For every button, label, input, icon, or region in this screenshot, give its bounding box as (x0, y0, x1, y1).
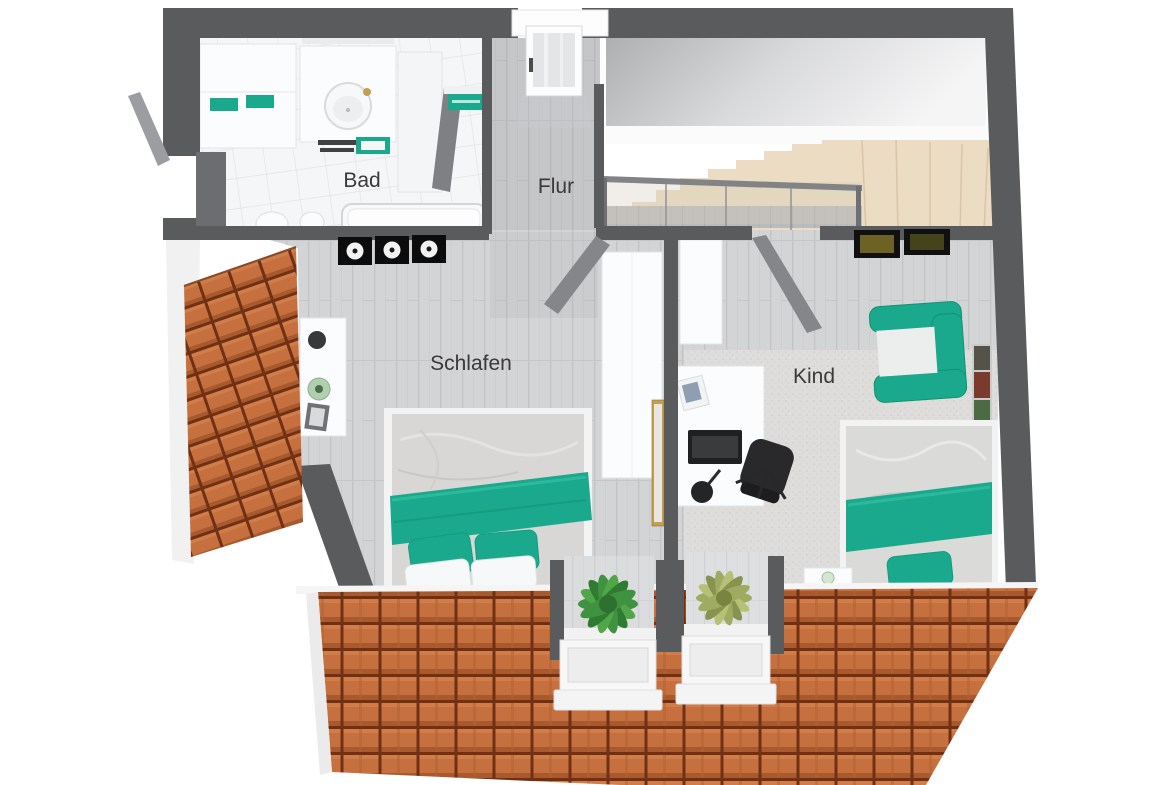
bath-mat-inner (361, 141, 385, 150)
picture-frame-inner (309, 407, 325, 427)
planter-inset (690, 644, 762, 676)
exterior-wall-top-left (163, 8, 520, 38)
stairwell (602, 38, 1006, 236)
room-label-kind: Kind (793, 365, 835, 388)
single-bed (840, 420, 998, 592)
armchair (869, 301, 967, 403)
floorplan-rendering: Bad Flur Schlafen Kind (0, 0, 1170, 785)
pane-reflection (560, 33, 563, 87)
handrail-baluster (665, 184, 667, 230)
plant-center (599, 595, 617, 613)
towel-stack (246, 95, 274, 108)
mirror-glass (654, 404, 662, 522)
sink-drain (346, 108, 350, 112)
towel-shelf (444, 86, 488, 94)
poster-panel (974, 372, 990, 398)
planter-skirt (676, 684, 776, 704)
green-vase-opening (315, 385, 323, 393)
flower-center (427, 247, 432, 252)
window-light-cast (516, 96, 592, 128)
towel-stack (210, 98, 238, 111)
bath-mat-dark (320, 148, 354, 152)
laptop-keyboard (692, 436, 738, 458)
bathroom-mirror (302, 38, 394, 44)
stairwell-sloped-ceiling (606, 38, 986, 128)
flower-center (390, 248, 395, 253)
faucet (363, 88, 371, 96)
window-pane (533, 33, 575, 87)
desk-lamp (691, 481, 713, 503)
pane-reflection (544, 33, 548, 87)
hallway-stair-wall (594, 84, 604, 228)
exterior-wall-top-right (580, 8, 1013, 38)
picture-art (860, 235, 894, 253)
floorplan-canvas: Bad Flur Schlafen Kind (0, 0, 1170, 785)
handrail-baluster (725, 186, 727, 230)
picture-art (910, 234, 944, 250)
dormer-divider-wall (656, 560, 684, 652)
room-label-flur: Flur (538, 175, 574, 198)
window-handle (529, 58, 533, 72)
planter-skirt (554, 690, 662, 710)
poster-panel (974, 346, 990, 370)
kids-wardrobe (680, 240, 722, 344)
exterior-wall-left (163, 8, 200, 156)
plant-center (716, 590, 732, 606)
room-divider-wall (664, 226, 678, 592)
bathroom-door-nook-wall (196, 152, 226, 234)
bedside-decor (822, 572, 834, 584)
towel-stripe (452, 100, 480, 103)
armchair-seat (876, 327, 937, 377)
left-roof-slope (184, 247, 303, 557)
bath-mat-dark (318, 140, 356, 145)
planter-inset (568, 648, 648, 682)
room-label-bad: Bad (343, 169, 380, 192)
flower-center (353, 249, 358, 254)
handrail-baluster (790, 188, 792, 230)
room-label-schlafen: Schlafen (430, 352, 512, 375)
black-vase (308, 331, 326, 349)
flower-triptych (338, 235, 446, 265)
bathroom-east-wall (482, 38, 492, 234)
